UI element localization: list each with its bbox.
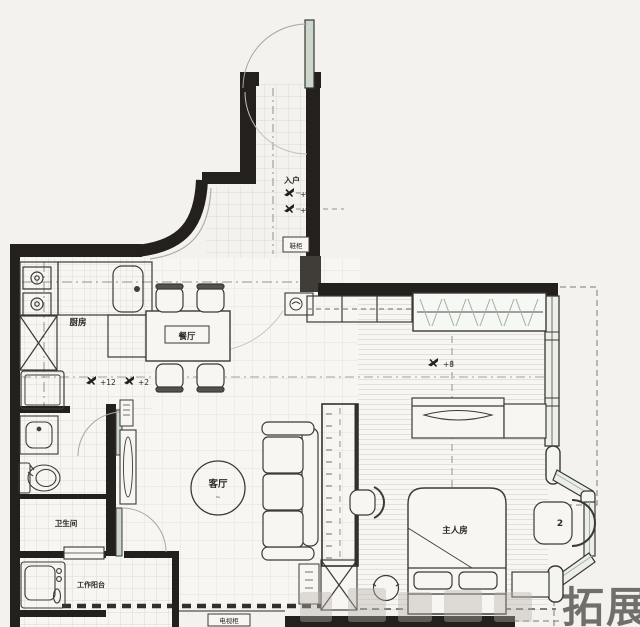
watermark-text: 拓展 (562, 583, 640, 627)
dresser-desk (412, 398, 546, 438)
dining-chair (156, 364, 183, 392)
level-marker-text: +2 (138, 378, 149, 387)
dining-chair (197, 284, 224, 312)
kitchen-label: 厨房 (69, 317, 86, 328)
bay-chair-tag: 2 (557, 519, 563, 529)
tv-cabinet-label: 电视柜 (219, 616, 239, 625)
level-marker-text: +2 (300, 206, 311, 215)
floor-plan-canvas: +0 +2 +12 +2 +8 入户 厨房 餐厅 客厅 ~ 主人房 卫生间 工作… (0, 0, 640, 627)
wardrobe (413, 293, 546, 331)
level-marker-text: +8 (443, 360, 454, 369)
bathroom-label: 卫生间 (55, 518, 78, 528)
dining-chair (156, 284, 183, 312)
dining-label: 餐厅 (177, 331, 196, 342)
bedroom-label: 主人房 (442, 525, 468, 536)
entry-label: 入户 (283, 175, 300, 185)
living-label: 客厅 (207, 478, 228, 490)
level-marker-text: +12 (100, 378, 116, 387)
utility-balcony-label: 工作阳台 (77, 580, 105, 589)
level-marker-text: +0 (300, 190, 311, 199)
sofa (262, 422, 318, 560)
living-label-mark: ~ (215, 494, 220, 501)
shoe-cabinet-label: 鞋柜 (290, 241, 304, 250)
bedroom-right-window (545, 296, 559, 446)
dining-chair (197, 364, 224, 392)
